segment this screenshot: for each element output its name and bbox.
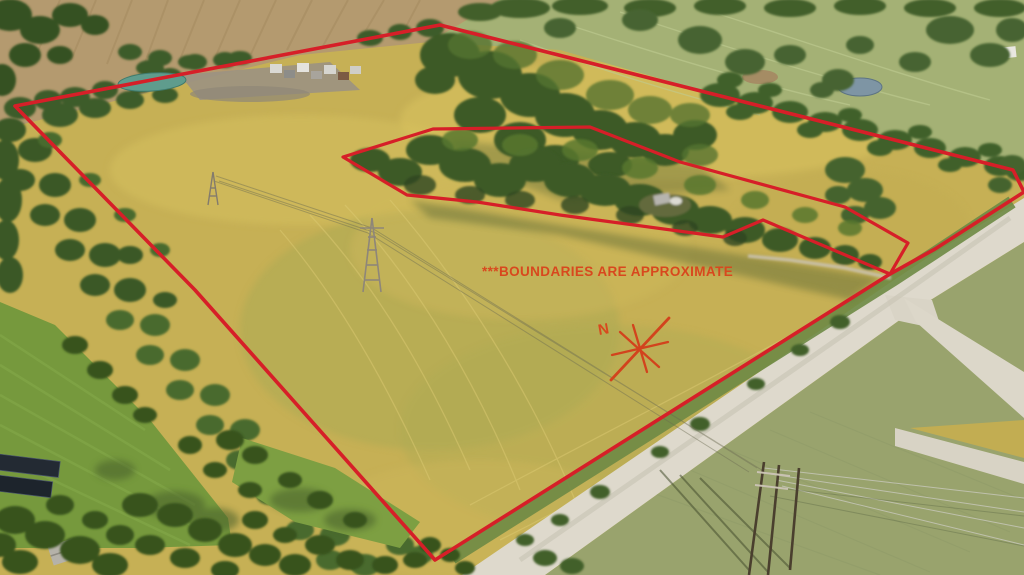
disclaimer-text: ***BOUNDARIES ARE APPROXIMATE	[482, 264, 733, 279]
junk-row	[190, 86, 310, 102]
homestead-outbuilding	[670, 197, 682, 205]
aerial-property-photo: ***BOUNDARIES ARE APPROXIMATE N	[0, 0, 1024, 575]
aerial-scene: ***BOUNDARIES ARE APPROXIMATE N	[0, 0, 1024, 575]
